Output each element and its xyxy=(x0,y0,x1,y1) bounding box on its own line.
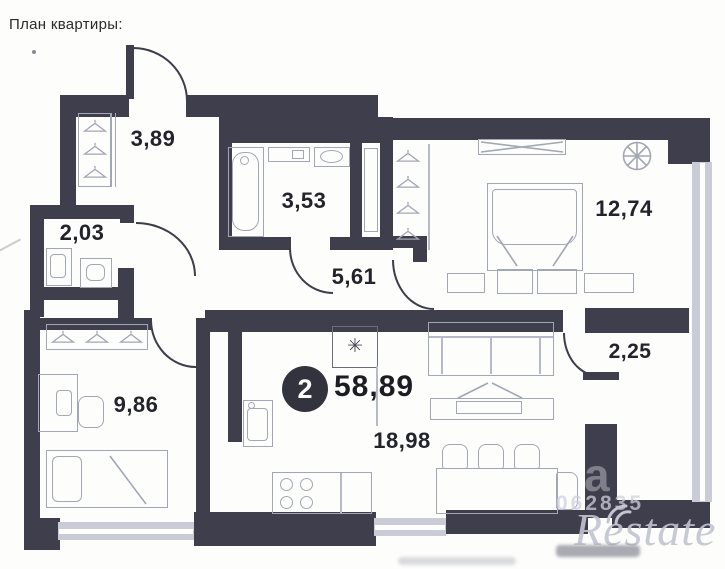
wall-bottom-left-corner xyxy=(24,518,60,550)
wall-entry-left xyxy=(60,95,76,207)
dining-table xyxy=(436,468,558,514)
rooms-count-badge: 2 xyxy=(282,366,328,412)
sofa-cushion-line xyxy=(490,336,492,374)
kitchen-faucet xyxy=(248,402,255,409)
ceiling-light-icon xyxy=(620,139,654,173)
scan-dot xyxy=(32,50,36,54)
wall-bath-right xyxy=(350,143,362,237)
toilet-sink-basin xyxy=(50,254,66,278)
room-label-entry: 3,89 xyxy=(118,126,188,152)
hanger-icon xyxy=(82,164,108,179)
desk-chair xyxy=(78,396,104,428)
hanger-icon xyxy=(118,329,144,344)
hanger-icon xyxy=(395,148,421,163)
single-bed-pillow xyxy=(52,456,82,502)
bedroom-bench-right xyxy=(584,273,634,293)
stove-burner xyxy=(280,478,293,491)
floor-plan: План квартиры: xyxy=(0,0,725,569)
room2-door-arc xyxy=(150,320,196,368)
wardrobe-nook-line xyxy=(428,144,430,250)
balcony-door-arc xyxy=(563,333,599,377)
wall-room2-right xyxy=(196,318,210,518)
room-label-kitchen-living: 18,98 xyxy=(366,428,438,454)
kitchen-sink-basin xyxy=(247,408,268,441)
dining-chair xyxy=(478,444,504,469)
wall-toilet-right-lower xyxy=(118,268,134,322)
wardrobe-x-icon xyxy=(480,141,564,153)
room-label-bedroom: 12,74 xyxy=(586,196,662,222)
smudge-mark xyxy=(556,545,640,557)
wall-bedroom-top xyxy=(378,118,690,140)
room-label-toilet: 2,03 xyxy=(50,220,114,246)
entry-door-arc xyxy=(133,47,188,101)
pencil-mark xyxy=(0,238,21,251)
boiler-symbol: ✳ xyxy=(332,326,378,368)
wall-balcony-top xyxy=(585,308,689,333)
toilet-door-arc xyxy=(136,222,196,276)
bedroom-door-arc xyxy=(392,260,434,310)
hanger-icon xyxy=(82,118,108,133)
bath-shelf-item xyxy=(292,150,304,159)
page-title: План квартиры: xyxy=(9,16,123,33)
room-label-room2: 9,86 xyxy=(102,392,170,418)
wall-kitchen-bottom xyxy=(194,512,376,546)
wall-bath-bottom-left xyxy=(219,237,291,250)
wall-top-a xyxy=(186,95,322,117)
sofa-armrest xyxy=(539,336,541,374)
desk-monitor xyxy=(56,390,72,416)
bedroom-bench-left xyxy=(447,273,485,293)
total-area-label: 58,89 xyxy=(334,370,414,404)
single-bed-fold xyxy=(96,452,156,506)
hanger-icon xyxy=(84,329,110,344)
tv-stand-lines xyxy=(450,380,530,400)
wall-kitchen-duct xyxy=(228,320,242,442)
stove-burner xyxy=(300,478,313,491)
wall-toilet-bottom xyxy=(30,287,120,300)
bed-fold-lines xyxy=(487,232,583,270)
window-right xyxy=(692,162,712,502)
hanger-icon xyxy=(50,329,76,344)
room-label-hallway: 5,61 xyxy=(322,264,386,290)
counter-divider xyxy=(340,473,342,513)
wall-toilet-right-upper xyxy=(120,205,134,223)
entry-closet-rail xyxy=(110,113,116,187)
room-label-balcony: 2,25 xyxy=(598,340,662,364)
wall-bedroom-left xyxy=(380,140,393,238)
nightstand xyxy=(497,269,533,294)
hanger-icon xyxy=(395,226,421,241)
smudge-mark xyxy=(398,557,516,565)
window-kitchen xyxy=(374,518,446,536)
bathtub-drain xyxy=(240,156,249,165)
bathroom-sink-basin xyxy=(320,150,343,163)
stove-burner xyxy=(300,496,313,509)
toilet-bowl-inner xyxy=(86,264,105,281)
wall-toilet-left xyxy=(30,205,44,317)
wall-bath-top xyxy=(219,117,393,143)
room-label-bathroom: 3,53 xyxy=(272,188,336,214)
window-room2 xyxy=(58,522,194,540)
tv xyxy=(456,401,522,414)
wall-toilet-top xyxy=(30,205,134,219)
stove-burner xyxy=(280,496,293,509)
hanger-icon xyxy=(82,141,108,156)
wall-corner-top-right xyxy=(668,118,710,164)
hanger-icon xyxy=(395,200,421,215)
hanger-icon xyxy=(395,174,421,189)
dining-chair xyxy=(514,444,540,469)
sofa-armrest xyxy=(441,336,443,374)
duct-shaft xyxy=(364,148,378,232)
nightstand xyxy=(537,269,577,294)
dining-chair xyxy=(442,444,468,469)
